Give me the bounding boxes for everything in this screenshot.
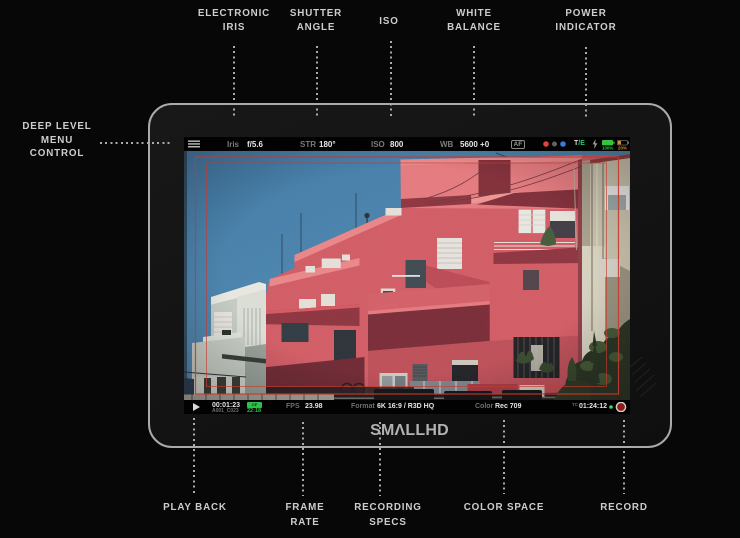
svg-text:100%: 100%: [602, 145, 613, 149]
svg-text:20%: 20%: [618, 145, 627, 149]
